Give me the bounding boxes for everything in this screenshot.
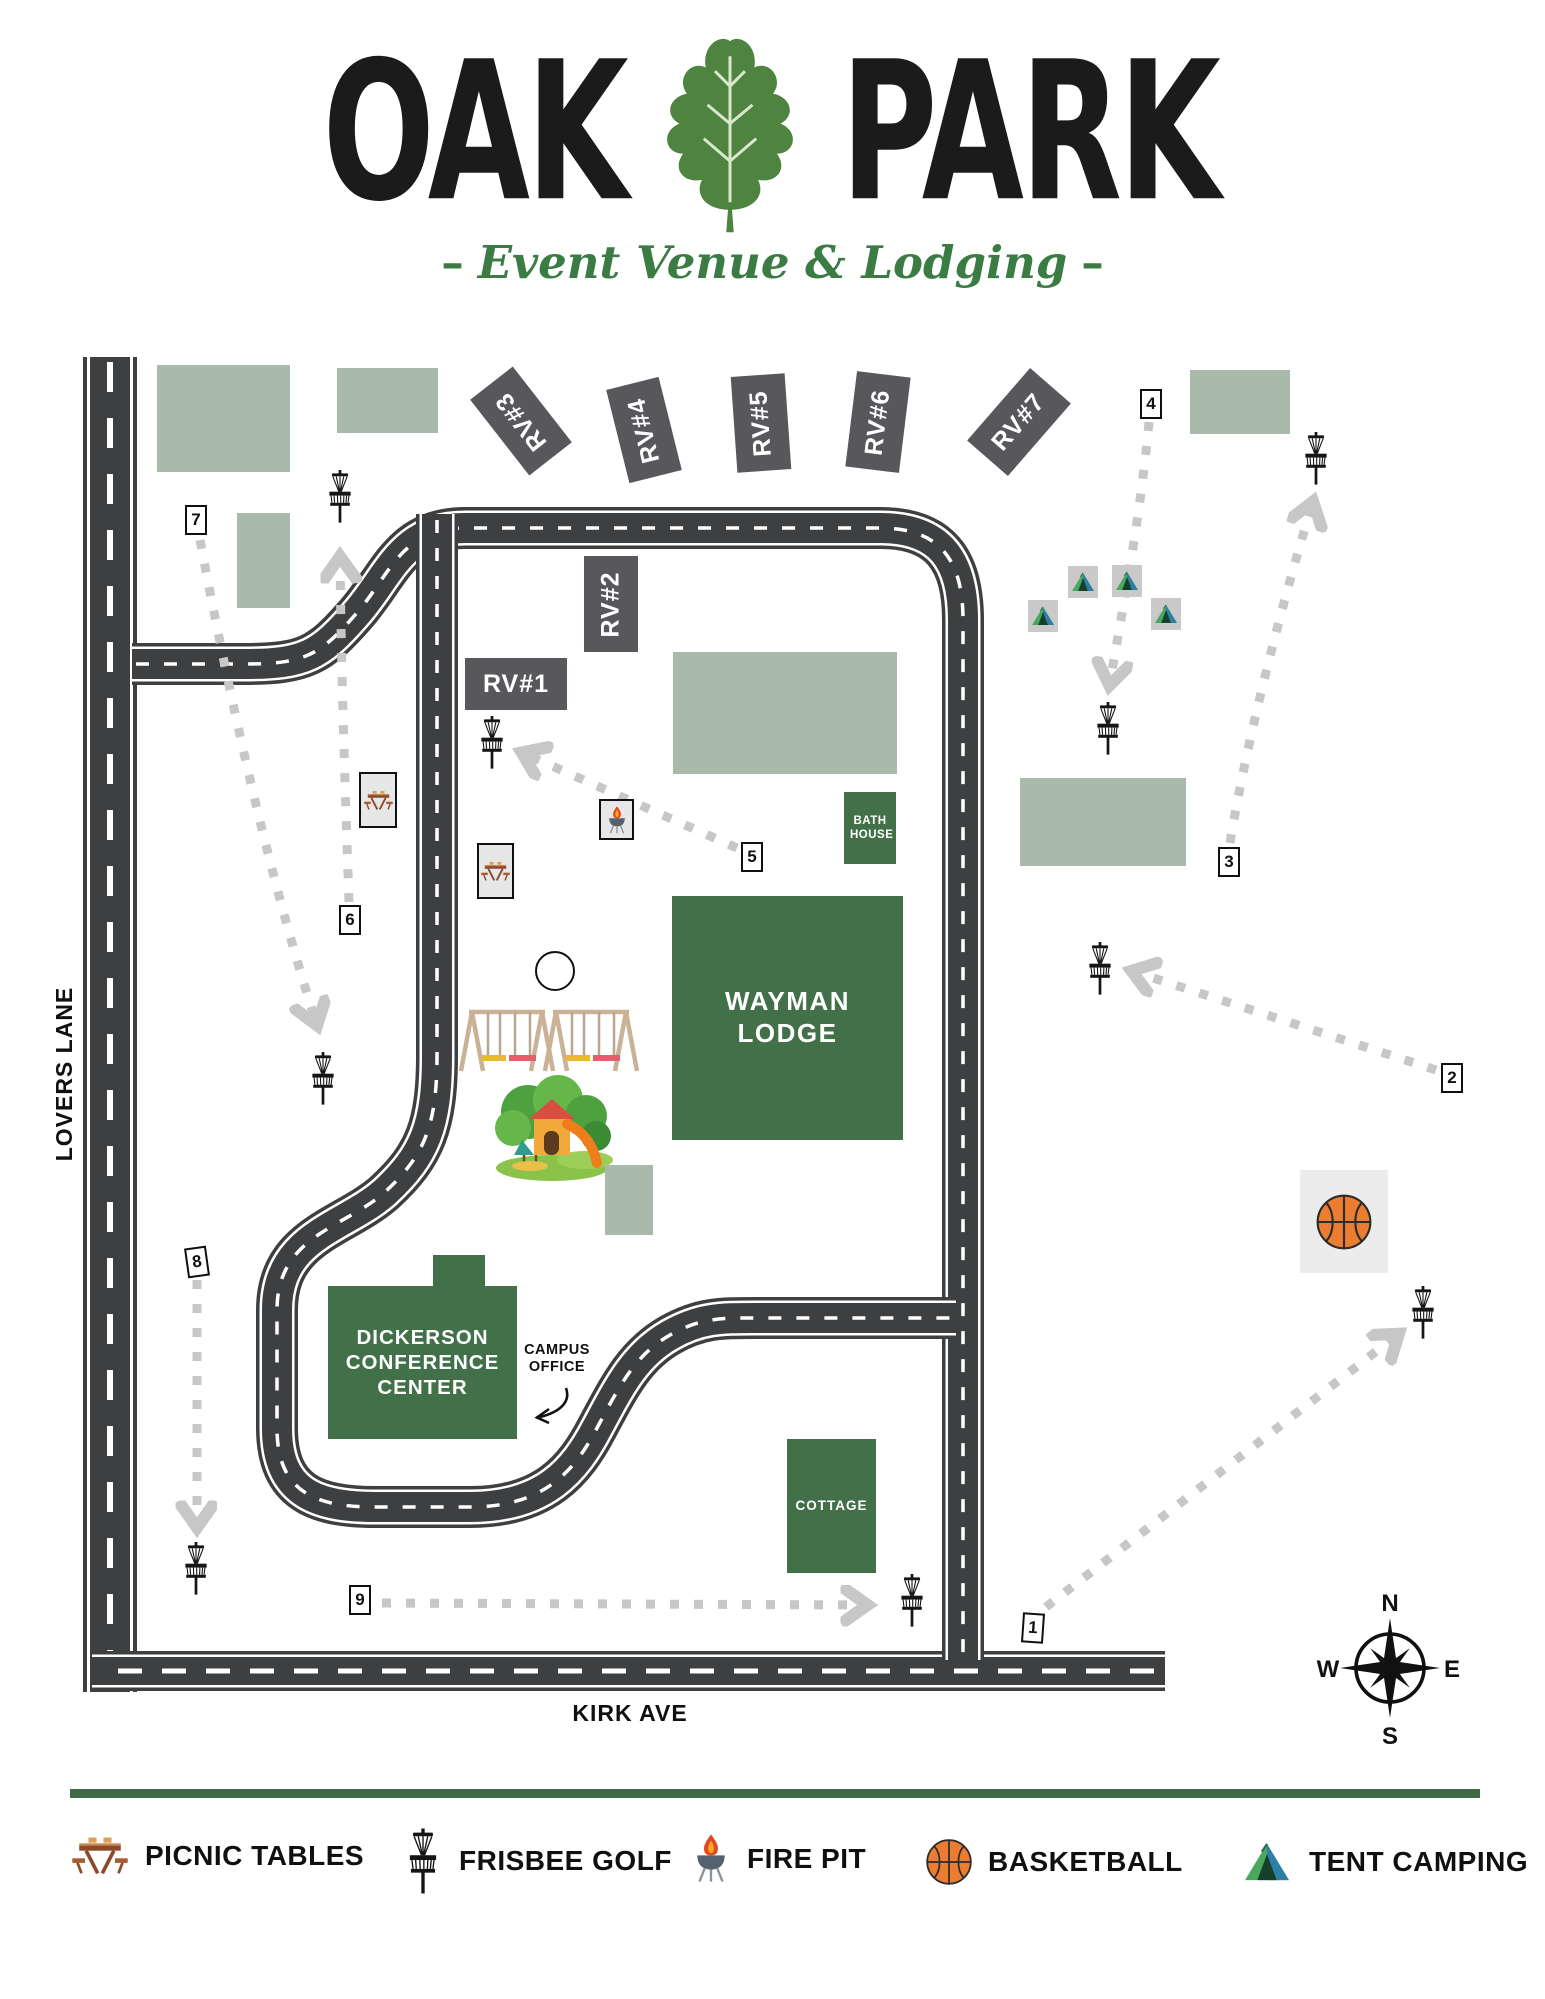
tent-icon xyxy=(1114,570,1140,592)
oak-park-campus-map: OAK PARK –Event Venue & Lodging– xyxy=(0,0,1545,1999)
disc-golf-basket-icon xyxy=(402,1828,444,1894)
legend-label: FRISBEE GOLF xyxy=(459,1845,672,1877)
tee-marker-5: 5 xyxy=(741,842,763,872)
compass-north-label: N xyxy=(1381,1590,1398,1617)
swing-seat xyxy=(566,1055,590,1061)
legend-label: FIRE PIT xyxy=(747,1843,866,1875)
swing-seat xyxy=(509,1055,536,1061)
tent-site-marker xyxy=(1068,566,1098,598)
picnic-table-icon xyxy=(70,1834,130,1878)
rv-spot-1-label: RV#1 xyxy=(483,670,549,699)
disc-golf-basket-icon-hole-4 xyxy=(1097,702,1118,755)
street-label-lovers-lane: LOVERS LANE xyxy=(51,964,75,1184)
tee-3-label: 3 xyxy=(1224,852,1233,872)
rv-spot-2: RV#2 xyxy=(584,556,638,652)
tee-marker-9: 9 xyxy=(349,1585,371,1615)
tee-8-label: 8 xyxy=(191,1251,203,1272)
fire-pit-icon xyxy=(605,805,629,835)
rv-spot-2-label: RV#2 xyxy=(597,571,626,637)
basketball-court-marker xyxy=(1300,1170,1388,1273)
rv-spot-5: RV#5 xyxy=(731,373,792,473)
legend-item-frisbee-golf: FRISBEE GOLF xyxy=(402,1828,672,1894)
tent-site-marker xyxy=(1151,598,1181,630)
legend-label: PICNIC TABLES xyxy=(145,1840,364,1872)
legend-item-fire-pit: FIRE PIT xyxy=(690,1832,866,1885)
legend-label: BASKETBALL xyxy=(988,1846,1183,1878)
disc-golf-basket-icon-hole-1 xyxy=(1412,1286,1433,1339)
tee-marker-6: 6 xyxy=(339,905,361,935)
rv-spot-1: RV#1 xyxy=(465,658,567,710)
tent-site-marker xyxy=(1112,565,1142,597)
rv-spot-5-label: RV#5 xyxy=(744,389,778,457)
swing-sets xyxy=(461,1012,637,1071)
picnic-table-icon xyxy=(363,789,394,812)
tent-icon xyxy=(1240,1840,1294,1884)
hole-4-flight-path xyxy=(1110,422,1149,682)
dickerson-label: DICKERSON CONFERENCE CENTER xyxy=(338,1325,508,1400)
picnic-table-icon xyxy=(480,860,511,883)
tee-2-label: 2 xyxy=(1447,1068,1456,1088)
rv-spot-6-label: RV#6 xyxy=(860,387,897,456)
tee-5-label: 5 xyxy=(747,847,756,867)
cottage-label: COTTAGE xyxy=(796,1498,868,1514)
tent-icon xyxy=(1030,605,1056,627)
campus-office-arrow xyxy=(537,1388,567,1423)
tee-1-label: 1 xyxy=(1028,1618,1039,1639)
parking-pad xyxy=(605,1165,653,1235)
tee-marker-8: 8 xyxy=(184,1246,210,1279)
wayman-lodge-label: WAYMAN LODGE xyxy=(698,986,878,1049)
parking-pad xyxy=(1190,370,1290,434)
building-wayman-lodge: WAYMAN LODGE xyxy=(672,896,903,1140)
bath-house-label: BATH HOUSE xyxy=(850,814,890,842)
disc-golf-basket-icon-hole-5 xyxy=(481,716,502,769)
tee-9-label: 9 xyxy=(355,1590,364,1610)
tee-marker-3: 3 xyxy=(1218,847,1240,877)
parking-pad xyxy=(237,513,290,608)
parking-pad xyxy=(673,652,897,774)
tee-marker-1: 1 xyxy=(1021,1612,1045,1643)
compass-west-label: W xyxy=(1317,1656,1340,1683)
hole-2-flight-path xyxy=(1135,972,1436,1070)
hole-1-flight-path xyxy=(1046,1336,1396,1607)
legend-label: TENT CAMPING xyxy=(1309,1846,1528,1878)
campus-office-label: CAMPUS OFFICE xyxy=(505,1342,609,1377)
compass-rose: N E S W xyxy=(1317,1590,1460,1750)
hole-9-flight-path xyxy=(382,1603,864,1605)
hole-3-flight-path xyxy=(1230,505,1312,843)
tee-7-label: 7 xyxy=(191,510,200,530)
fire-pit-icon xyxy=(690,1832,732,1885)
legend-divider-bar xyxy=(70,1789,1480,1798)
disc-golf-basket-icon-hole-3 xyxy=(1305,432,1326,485)
tent-icon xyxy=(1153,603,1179,625)
parking-pad xyxy=(157,365,290,472)
tee-4-label: 4 xyxy=(1146,394,1155,414)
tee-marker-2: 2 xyxy=(1441,1063,1463,1093)
basketball-icon xyxy=(925,1838,973,1886)
tent-site-marker xyxy=(1028,600,1058,632)
legend-item-basketball: BASKETBALL xyxy=(925,1838,1183,1886)
tent-icon xyxy=(1070,571,1096,593)
fire-pit-marker xyxy=(599,799,634,840)
picnic-area-marker xyxy=(477,843,514,899)
basketball-icon xyxy=(1315,1193,1373,1251)
compass-south-label: S xyxy=(1382,1723,1398,1750)
playground-illustration xyxy=(495,1075,613,1181)
disc-golf-basket-icon-hole-8 xyxy=(185,1542,206,1595)
building-dickerson-conference-center: DICKERSON CONFERENCE CENTER xyxy=(328,1286,517,1439)
swing-seat xyxy=(593,1055,620,1061)
building-cottage: COTTAGE xyxy=(787,1439,876,1573)
hole-7-flight-path xyxy=(200,540,316,1022)
disc-golf-basket-icon-hole-7 xyxy=(312,1052,333,1105)
legend-item-tent-camping: TENT CAMPING xyxy=(1240,1840,1528,1884)
disc-golf-basket-icon-hole-9 xyxy=(901,1574,922,1627)
compass-east-label: E xyxy=(1444,1656,1460,1683)
building-bath-house: BATH HOUSE xyxy=(844,792,896,864)
legend-item-picnic-tables: PICNIC TABLES xyxy=(70,1834,364,1878)
swing-seat xyxy=(482,1055,506,1061)
tee-marker-7: 7 xyxy=(185,505,207,535)
street-label-kirk-ave: KIRK AVE xyxy=(540,1700,720,1727)
parking-pad xyxy=(337,368,438,433)
rv-spot-4-label: RV#4 xyxy=(622,394,666,465)
gathering-circle xyxy=(535,951,575,991)
disc-golf-basket-icon-hole-6 xyxy=(329,470,350,523)
tee-6-label: 6 xyxy=(345,910,354,930)
disc-golf-basket-icon-hole-2 xyxy=(1089,942,1110,995)
parking-pad xyxy=(1020,778,1186,866)
picnic-area-marker xyxy=(359,772,397,828)
tee-marker-4: 4 xyxy=(1140,389,1162,419)
